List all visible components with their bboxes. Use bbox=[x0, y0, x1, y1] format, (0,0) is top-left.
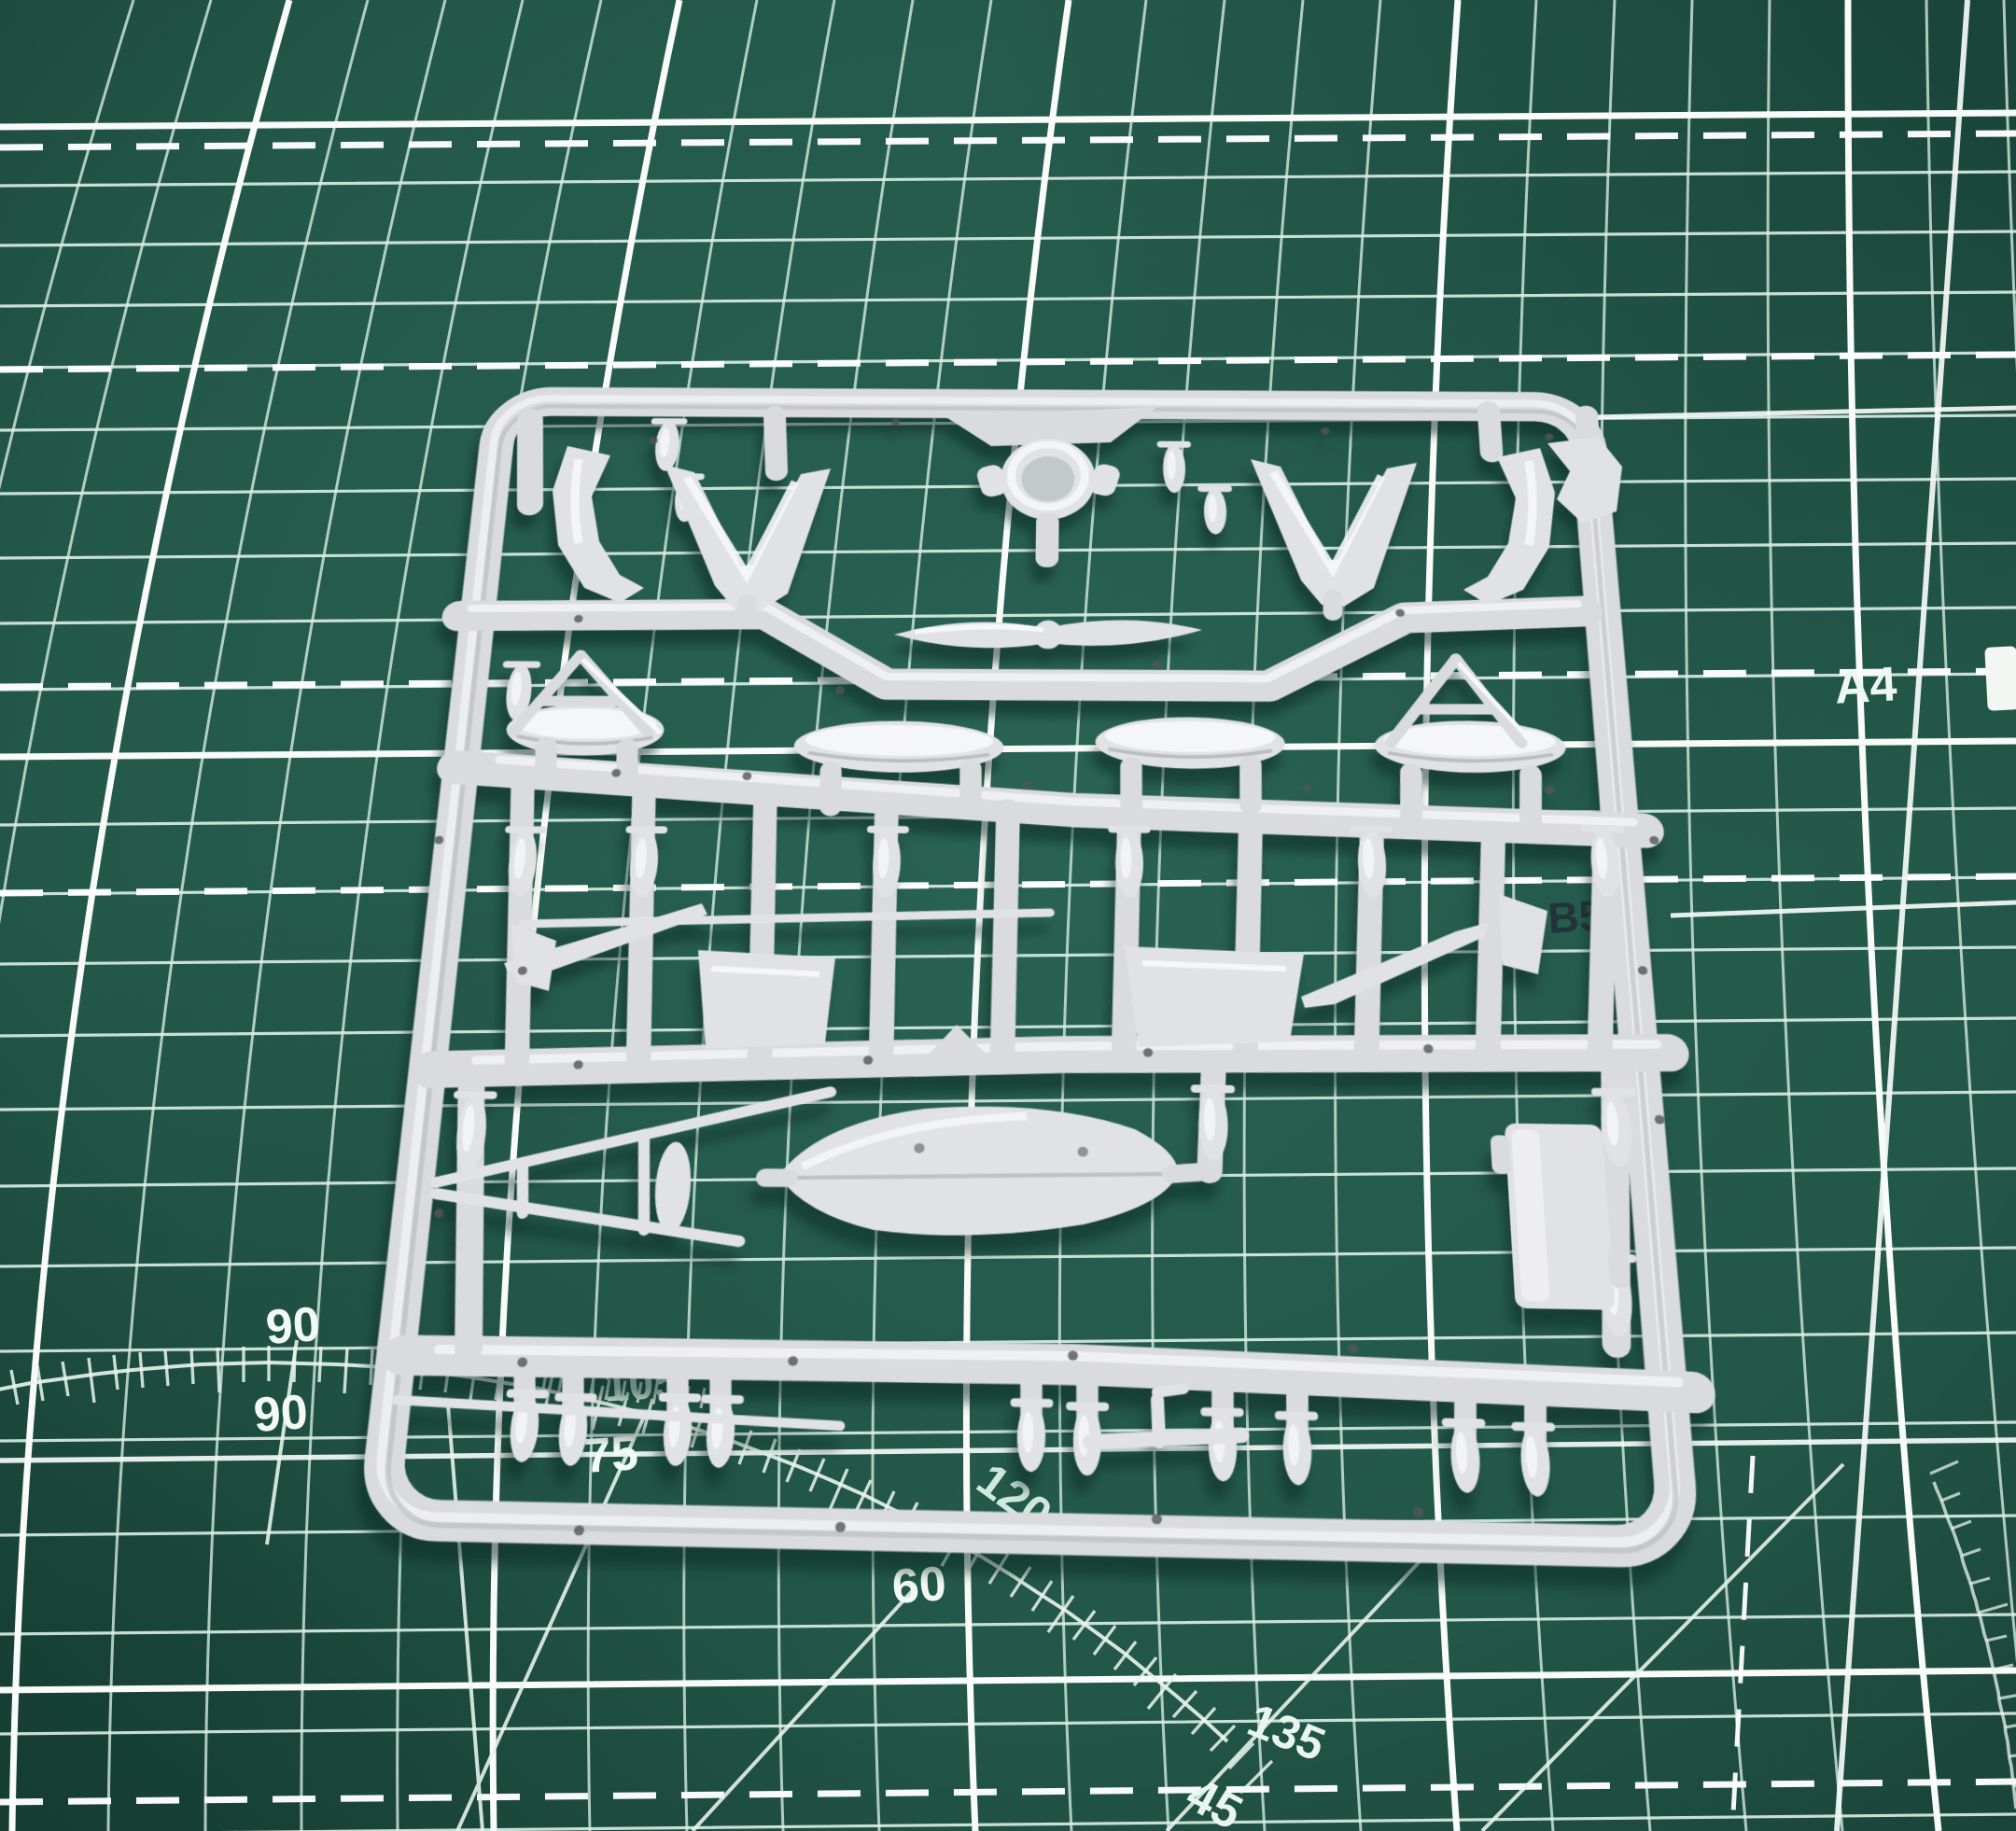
svg-text:60: 60 bbox=[890, 1557, 948, 1614]
svg-text:90: 90 bbox=[252, 1385, 310, 1443]
svg-text:A4: A4 bbox=[1833, 657, 1897, 714]
svg-text:90: 90 bbox=[264, 1297, 322, 1355]
